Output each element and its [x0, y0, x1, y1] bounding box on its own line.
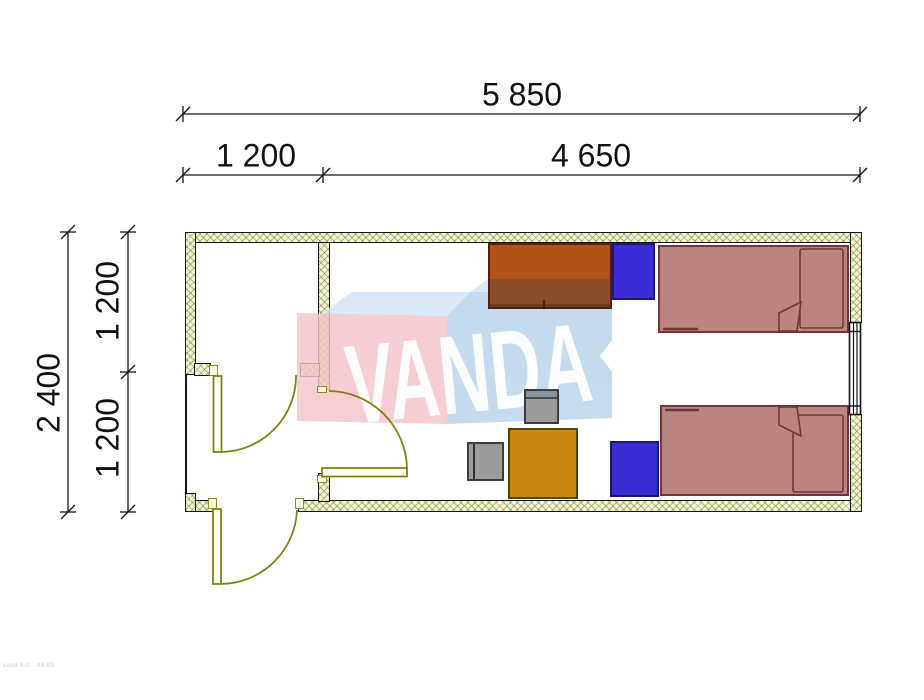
watermark-text: VANDA	[340, 300, 597, 448]
partition-wall-stub	[300, 363, 320, 377]
nightstand-bottom	[610, 441, 659, 497]
chair-back-rail	[526, 391, 557, 399]
vanda-watermark: VANDA	[0, 0, 924, 700]
wardrobe	[488, 243, 612, 309]
exterior-door-jamb-left	[208, 498, 217, 509]
interior-door-leaf	[322, 468, 407, 477]
dim-label-depth-lower: 1 200	[90, 398, 127, 478]
plan-linework	[0, 0, 924, 700]
exterior-door-jamb-right	[295, 498, 304, 509]
wall-top	[185, 232, 862, 243]
wall-right-upper	[850, 232, 862, 323]
wall-left-upper	[185, 232, 196, 375]
dim-label-entry-width: 1 200	[216, 138, 296, 175]
entry-door-leaf	[214, 376, 222, 452]
dim-label-room-width: 4 650	[551, 138, 631, 175]
entry-door-swing-arc	[221, 375, 296, 452]
left-wall-opening-edge	[185, 375, 187, 493]
interior-door-jamb-top	[317, 386, 327, 393]
chair-back	[524, 389, 559, 424]
dimension-lines	[0, 0, 924, 700]
wall-left-lower	[185, 493, 196, 512]
wall-right-lower	[850, 414, 862, 512]
chair-side-rail	[473, 444, 475, 479]
window	[850, 323, 861, 415]
dim-label-total-depth: 2 400	[31, 353, 68, 433]
exterior-door-swing-arc	[221, 510, 297, 584]
bed-top	[658, 245, 849, 333]
interior-door-swing-arc	[329, 391, 407, 468]
entry-door-jamb	[209, 365, 218, 376]
chair-side	[467, 442, 504, 481]
wall-bottom-right	[298, 500, 862, 512]
interior-door-jamb-bottom	[317, 475, 327, 483]
footer-note: vand 6.0 - 03 03	[3, 663, 54, 669]
dim-label-depth-upper: 1 200	[90, 261, 127, 341]
exterior-door-leaf	[213, 509, 221, 584]
dim-label-total-width: 5 850	[482, 77, 562, 114]
desk	[508, 428, 578, 499]
floor-plan-canvas: VANDA	[0, 0, 924, 700]
watermark-top-face	[318, 292, 470, 316]
bed-bottom	[660, 405, 849, 496]
nightstand-top	[612, 243, 655, 300]
